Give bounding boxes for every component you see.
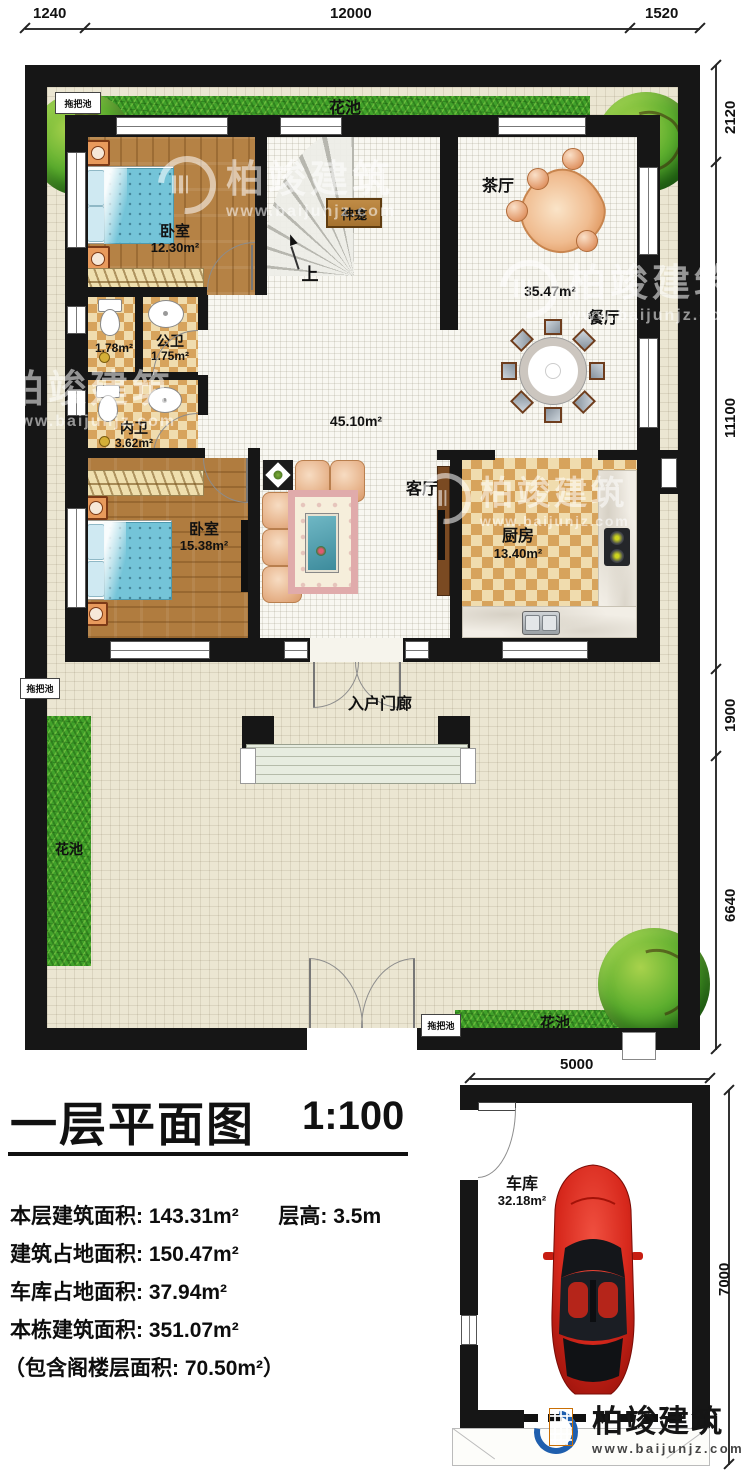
kitchen-area: 13.40m² xyxy=(482,547,554,561)
dimline-top xyxy=(25,28,700,30)
step-cap xyxy=(460,748,476,784)
dimline-garage-top xyxy=(470,1078,710,1080)
sink-ensuite xyxy=(148,387,182,413)
wall-bedroom2-top xyxy=(88,448,205,458)
window xyxy=(280,117,342,135)
coffee-table xyxy=(306,514,338,572)
flower-bed-left-label: 花池 xyxy=(44,842,94,857)
wall-bedroom1-right xyxy=(255,137,267,295)
site-wall-bottom-left xyxy=(25,1028,307,1050)
dining-chair xyxy=(589,362,605,380)
dining-label: 餐厅 xyxy=(572,310,636,328)
floor-plan-canvas: 1240 12000 1520 2120 11100 1900 6640 花池 … xyxy=(0,0,750,1477)
window xyxy=(502,641,588,659)
brand-url: www.baijunjz.com xyxy=(592,1441,744,1456)
garage-wall-top xyxy=(460,1085,710,1103)
garage-wall-left-b xyxy=(460,1180,478,1315)
dim-right-1900: 1900 xyxy=(722,699,739,732)
window xyxy=(405,641,429,659)
toilet-public xyxy=(96,299,122,335)
niche-opening xyxy=(661,458,677,488)
ensuite-label: 内卫 xyxy=(110,421,158,436)
bedroom2-label: 卧室 xyxy=(162,522,246,539)
window xyxy=(639,167,658,255)
bedroom2-area: 15.38m² xyxy=(158,539,250,553)
garage-window xyxy=(461,1315,477,1345)
wall-bedroom2-right xyxy=(248,448,260,638)
bedroom1-area: 12.30m² xyxy=(130,241,220,255)
garage-wall-left-a xyxy=(460,1085,478,1110)
wall-bath-right-a xyxy=(198,295,208,330)
window xyxy=(110,641,210,659)
site-wall-left xyxy=(25,65,47,1050)
step-cap xyxy=(240,748,256,784)
dim-top-12000: 12000 xyxy=(330,5,372,22)
kitchen-sink xyxy=(522,611,560,635)
dining-table xyxy=(520,338,586,404)
window xyxy=(67,152,86,248)
dining-chair xyxy=(544,407,562,423)
stat-story-height: 层高: 3.5m xyxy=(278,1205,381,1228)
dimline-right xyxy=(715,65,717,1050)
window xyxy=(67,306,86,334)
window xyxy=(116,117,228,135)
stat-total-area: 本栋建筑面积: 351.07m² xyxy=(10,1314,239,1344)
wall-kitchen-left xyxy=(450,458,462,638)
wall-bath-right-b xyxy=(198,375,208,415)
kitchen-label: 厨房 xyxy=(484,528,552,546)
stool xyxy=(527,168,549,190)
brand-logo: 柏竣建筑 www.baijunjz.com xyxy=(534,1406,744,1458)
dining-chair xyxy=(501,362,517,380)
plan-title: 一层平面图 xyxy=(10,1086,255,1155)
stool xyxy=(562,148,584,170)
car xyxy=(543,1162,643,1402)
dim-garage-5000: 5000 xyxy=(560,1056,593,1073)
stat-footprint: 建筑占地面积: 150.47m² xyxy=(10,1238,239,1268)
bedroom2-wardrobe xyxy=(84,470,204,496)
mop-pool-bottom: 拖把池 xyxy=(421,1014,461,1037)
wall-bath-partition xyxy=(135,295,143,375)
stool xyxy=(576,230,598,252)
garage-side-gate xyxy=(622,1032,656,1060)
pillow xyxy=(87,170,105,206)
dim-top-1520: 1520 xyxy=(645,5,678,22)
window xyxy=(67,390,86,416)
garage-wall-bottom-stub xyxy=(460,1410,524,1428)
tea-room-label: 茶厅 xyxy=(466,178,530,196)
stove xyxy=(604,528,630,566)
pillow xyxy=(87,206,105,242)
brand-building-icon xyxy=(549,1408,573,1446)
toilet-ensuite xyxy=(94,385,120,421)
wall-kitchen-top-b xyxy=(598,450,637,460)
dim-garage-7000: 7000 xyxy=(716,1263,733,1296)
garage-wall-right xyxy=(692,1085,710,1428)
watermark-logo-icon xyxy=(0,354,8,436)
site-wall-top xyxy=(25,65,700,87)
living-area: 45.10m² xyxy=(310,414,402,429)
sink-public xyxy=(148,300,184,328)
site-wall-right xyxy=(678,65,700,1050)
dim-right-11100: 11100 xyxy=(722,398,739,438)
stat-floor-area: 本层建筑面积: 143.31m² 层高: 3.5m xyxy=(10,1200,381,1230)
brand-logo-icon xyxy=(534,1406,584,1458)
window xyxy=(67,508,86,608)
window xyxy=(639,338,658,428)
dim-right-6640: 6640 xyxy=(722,889,739,922)
mop-pool-top: 拖把池 xyxy=(55,92,101,114)
tv-living xyxy=(438,510,445,560)
wall-tea-room xyxy=(440,137,458,330)
entrance-opening xyxy=(310,638,403,662)
wall-bedroom1-bottom xyxy=(88,287,207,297)
stat-floor-area-text: 本层建筑面积: 143.31m² xyxy=(10,1205,239,1228)
stat-attic-note: （包含阁楼层面积: 70.50m²） xyxy=(4,1352,284,1382)
wall-kitchen-top-a xyxy=(437,450,495,460)
shrine: 神龛 xyxy=(326,198,382,228)
brand-name: 柏竣建筑 xyxy=(592,1406,744,1437)
tea-dining-area: 35.47m² xyxy=(508,284,592,299)
dim-right-2120: 2120 xyxy=(722,101,739,134)
bedroom1-label: 卧室 xyxy=(130,224,220,241)
stool xyxy=(506,200,528,222)
window xyxy=(284,641,308,659)
side-table-plant xyxy=(263,460,293,490)
dining-chair xyxy=(544,319,562,335)
bath-annex-area: 1.78m² xyxy=(88,342,140,355)
garage-label: 车库 xyxy=(494,1176,550,1194)
mop-pool-left: 拖把池 xyxy=(20,678,60,699)
pillow xyxy=(87,524,105,560)
porch-steps xyxy=(246,744,468,784)
stat-garage-footprint: 车库占地面积: 37.94m² xyxy=(10,1276,227,1306)
porch-label: 入户门廊 xyxy=(318,696,442,714)
title-underline xyxy=(8,1152,408,1156)
garage-door-arc xyxy=(478,1108,516,1178)
nightstand xyxy=(86,140,110,166)
stairs-up-label: 上 xyxy=(298,266,322,285)
dim-top-1240: 1240 xyxy=(33,5,66,22)
pillow xyxy=(87,561,105,597)
plan-scale: 1:100 xyxy=(302,1094,404,1139)
window xyxy=(498,117,586,135)
